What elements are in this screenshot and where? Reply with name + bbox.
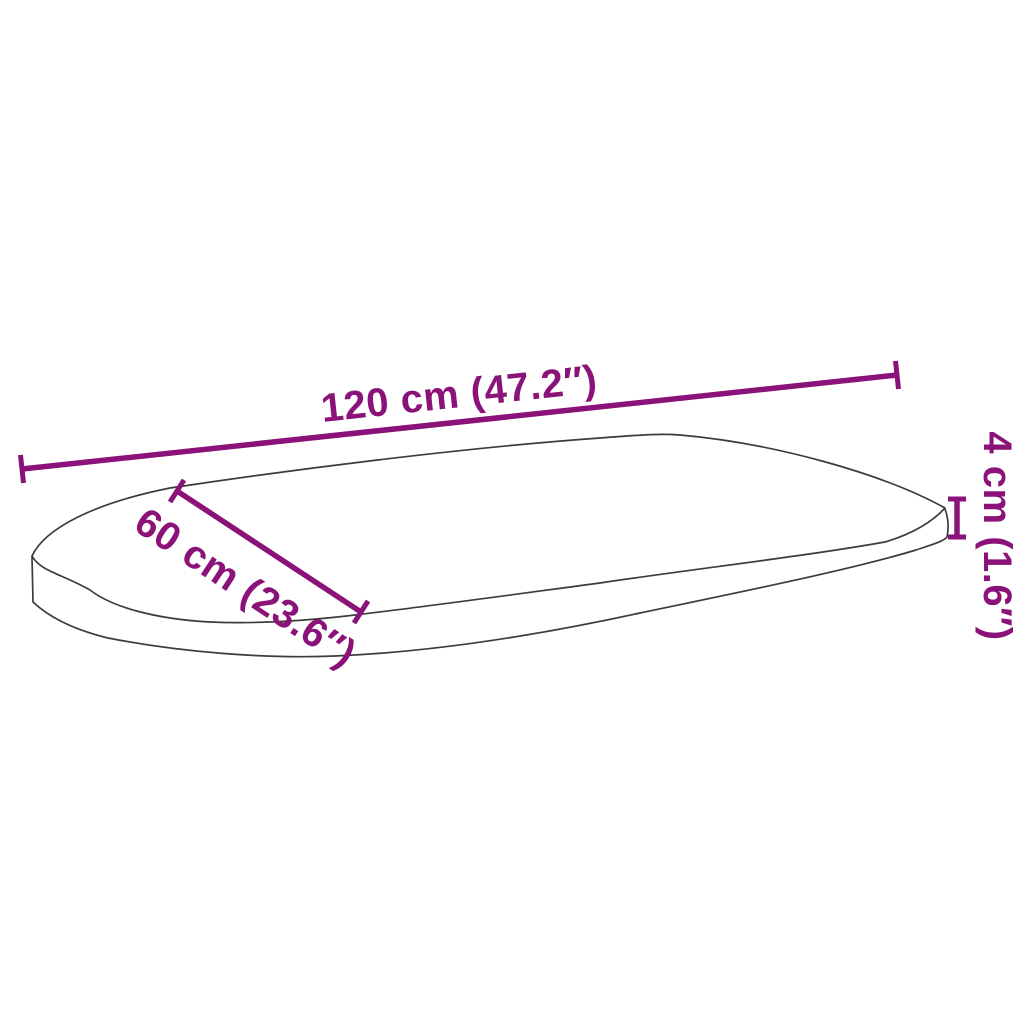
thickness-dimension: 4 cm (1.6″) <box>948 431 1019 640</box>
thickness-dimension-label: 4 cm (1.6″) <box>975 431 1019 640</box>
length-dimension-cap-left <box>21 455 24 483</box>
length-dimension-cap-right <box>896 361 899 389</box>
product-dimension-image: 120 cm (47.2″) 60 cm (23.6″) 4 cm (1.6″) <box>0 0 1024 1024</box>
dimension-diagram-canvas: 120 cm (47.2″) 60 cm (23.6″) 4 cm (1.6″) <box>0 0 1024 1024</box>
